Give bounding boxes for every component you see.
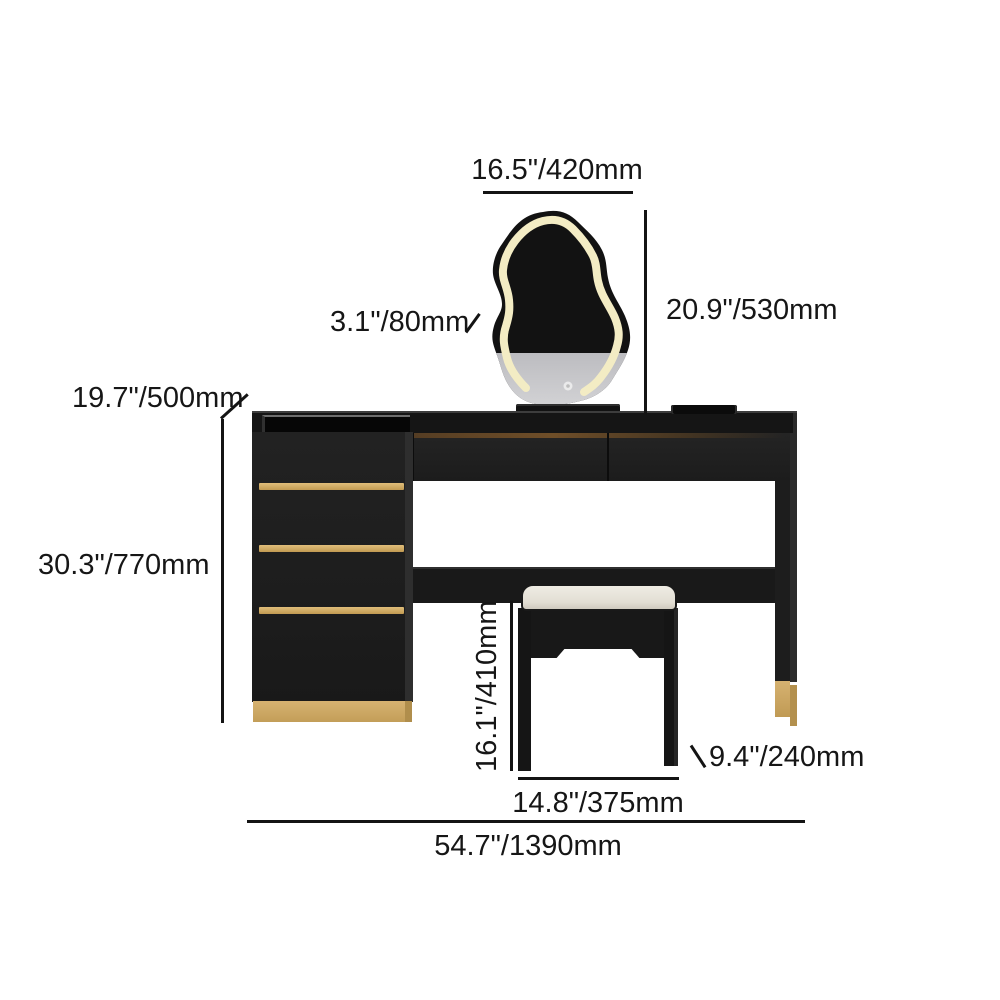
- dim-line-stool-height: [510, 601, 513, 771]
- dim-label-mirror-width: 16.5"/420mm: [457, 153, 657, 187]
- stool-left-leg: [518, 608, 531, 771]
- left-drawer-cabinet: [252, 432, 413, 702]
- right-leg-gold-foot: [775, 681, 790, 717]
- dimension-diagram: 16.5"/420mm 20.9"/530mm 3.1"/80mm 19.7"/…: [0, 0, 1000, 1000]
- dim-tick-stool-depth: [690, 745, 707, 768]
- desk-drawer-seam: [607, 433, 609, 481]
- right-leg-gold-foot-side: [790, 685, 797, 726]
- desk-top-tray: [262, 415, 410, 433]
- dim-line-mirror-width: [483, 191, 633, 194]
- dim-label-stool-depth: 9.4"/240mm: [709, 740, 864, 774]
- dim-line-total-width: [247, 820, 805, 823]
- dim-label-table-height: 30.3"/770mm: [38, 548, 208, 582]
- stool-arch-cutout: [550, 649, 646, 659]
- drawer-handle: [259, 545, 404, 552]
- dim-label-stool-width: 14.8"/375mm: [498, 786, 698, 820]
- drawer-handle: [259, 483, 404, 490]
- desk-power-strip: [671, 405, 737, 414]
- dim-label-total-width: 54.7"/1390mm: [318, 829, 738, 863]
- desk-right-leg: [775, 480, 797, 682]
- stool-cushion: [521, 584, 677, 611]
- dim-line-table-height: [221, 419, 224, 723]
- cabinet-gold-plinth: [253, 701, 412, 722]
- dim-label-depth: 19.7"/500mm: [72, 381, 222, 415]
- dim-line-mirror-height: [644, 210, 647, 415]
- dim-label-mirror-height: 20.9"/530mm: [666, 293, 838, 327]
- drawer-handle: [259, 607, 404, 614]
- dim-label-stool-height: 16.1"/410mm: [471, 600, 504, 772]
- stool-right-leg: [664, 608, 678, 766]
- dim-label-led-frame: 3.1"/80mm: [330, 305, 455, 339]
- vanity-mirror: [480, 208, 645, 420]
- dim-line-stool-width: [518, 777, 679, 780]
